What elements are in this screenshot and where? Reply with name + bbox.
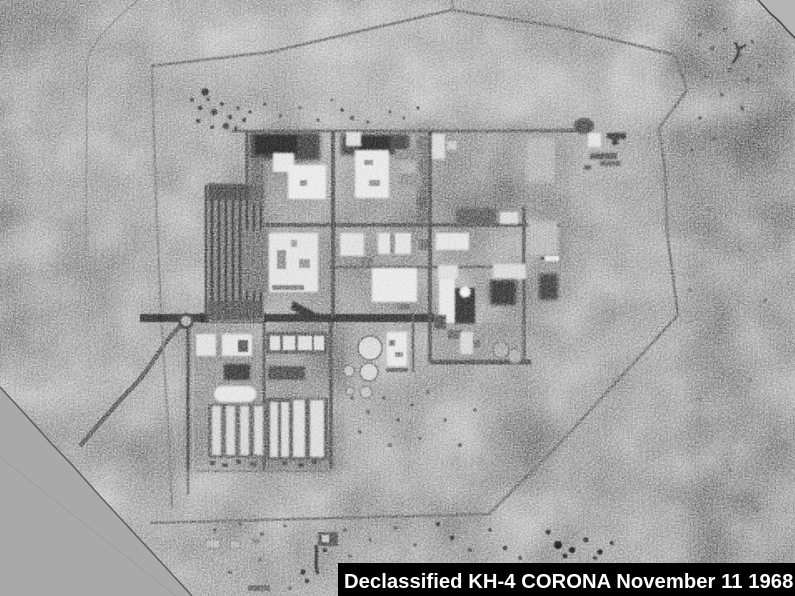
- svg-text:Declassified KH-4 CORONA Novem: Declassified KH-4 CORONA November 11 196…: [344, 571, 793, 593]
